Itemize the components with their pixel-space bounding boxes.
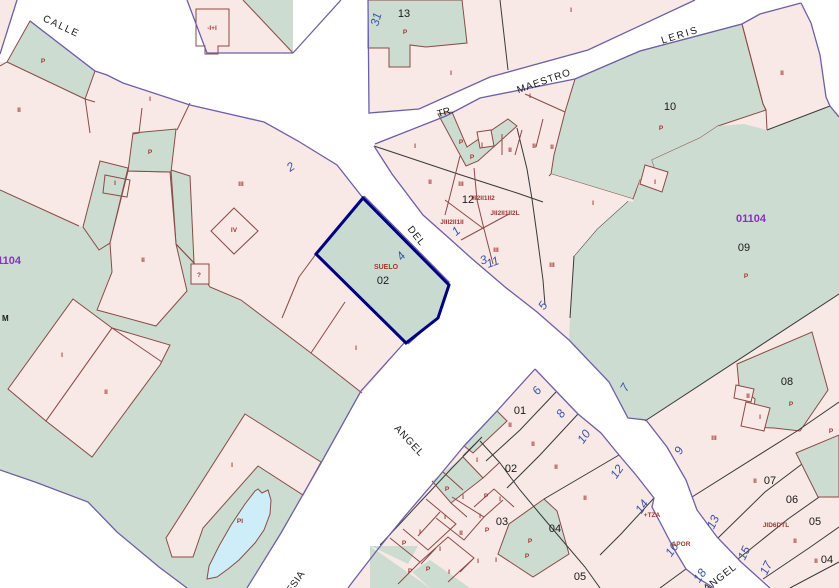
svg-text:01104: 01104 [0,255,22,267]
svg-text:01: 01 [514,405,526,417]
svg-text:II: II [746,393,750,400]
svg-text:13: 13 [398,8,410,20]
svg-text:+TZA: +TZA [644,512,661,519]
svg-text:04: 04 [821,554,833,566]
svg-text:P: P [470,154,475,161]
svg-text:PI: PI [237,518,243,525]
svg-text:II: II [17,107,21,114]
svg-text:II: II [532,143,536,150]
svg-text:I: I [414,143,416,150]
svg-text:06: 06 [786,494,798,506]
svg-text:02: 02 [505,463,517,475]
svg-text:I: I [654,179,656,186]
svg-text:III: III [238,181,244,188]
svg-text:P: P [445,486,450,493]
svg-text:I: I [355,345,357,352]
svg-text:P: P [789,401,794,408]
svg-text:II: II [793,538,797,545]
svg-text:I: I [419,529,421,536]
svg-text:SUELO: SUELO [374,264,399,271]
svg-text:II: II [508,422,512,429]
svg-text:P: P [659,125,664,132]
svg-text:II: II [780,70,784,77]
svg-text:09: 09 [738,242,750,254]
svg-text:P: P [459,139,464,146]
svg-text:07: 07 [764,475,776,487]
svg-text:?: ? [197,272,201,279]
svg-text:P: P [485,527,490,534]
svg-text:I: I [444,514,446,521]
svg-text:II: II [428,179,432,186]
svg-text:P: P [829,428,834,435]
svg-text:II: II [141,257,145,264]
svg-text:08: 08 [781,376,793,388]
svg-text:I: I [592,200,594,207]
svg-text:I: I [570,7,572,14]
svg-text:P: P [402,540,407,547]
svg-text:I: I [61,352,63,359]
svg-text:I: I [529,93,531,100]
svg-text:JID6DTL: JID6DTL [763,522,789,529]
svg-text:III: III [711,435,717,442]
svg-text:05: 05 [574,571,586,583]
svg-text:I: I [481,142,483,149]
svg-text:01104: 01104 [736,213,767,225]
svg-text:III: III [493,247,499,254]
svg-text:P: P [525,553,530,560]
svg-text:III: III [458,181,464,188]
svg-text:I: I [450,70,452,77]
svg-text:III2II1II2: III2II1II2 [471,195,495,202]
svg-text:10: 10 [664,101,676,113]
svg-text:03: 03 [496,516,508,528]
svg-text:P: P [484,493,489,500]
svg-text:P: P [148,149,153,156]
svg-text:04: 04 [549,523,561,535]
svg-text:P: P [528,538,533,545]
svg-text:P: P [426,566,431,573]
svg-text:II: II [104,389,108,396]
svg-text:I: I [477,558,479,565]
svg-text:I: I [479,513,481,520]
svg-text:M: M [2,314,9,323]
svg-text:I: I [114,180,116,187]
svg-text:02: 02 [377,275,389,287]
svg-text:P: P [41,58,46,65]
svg-text:I: I [231,462,233,469]
svg-text:II: II [753,478,757,485]
svg-text:I: I [149,96,151,103]
svg-text:-I+I: -I+I [207,25,217,32]
svg-text:I: I [495,557,497,564]
svg-text:P: P [403,29,408,36]
svg-text:II: II [554,464,558,471]
svg-text:II: II [508,147,512,154]
svg-text:P: P [408,568,413,575]
svg-text:I: I [439,546,441,553]
svg-text:IV: IV [231,227,238,234]
svg-text:P: P [744,273,749,280]
svg-text:05: 05 [809,516,821,528]
svg-text:APOR: APOR [672,541,691,548]
svg-text:III: III [549,262,555,269]
svg-text:I: I [476,457,478,464]
svg-text:II: II [550,144,554,151]
svg-text:JII2II1II2L: JII2II1II2L [490,210,519,217]
svg-text:II: II [459,530,463,537]
svg-text:II: II [583,495,587,502]
svg-text:I: I [462,494,464,501]
svg-text:I: I [759,414,761,421]
svg-text:JIII2II1II: JIII2II1II [440,219,464,226]
svg-text:II: II [531,441,535,448]
svg-text:I: I [448,569,450,576]
svg-text:II: II [814,558,818,565]
svg-text:I: I [499,496,501,503]
